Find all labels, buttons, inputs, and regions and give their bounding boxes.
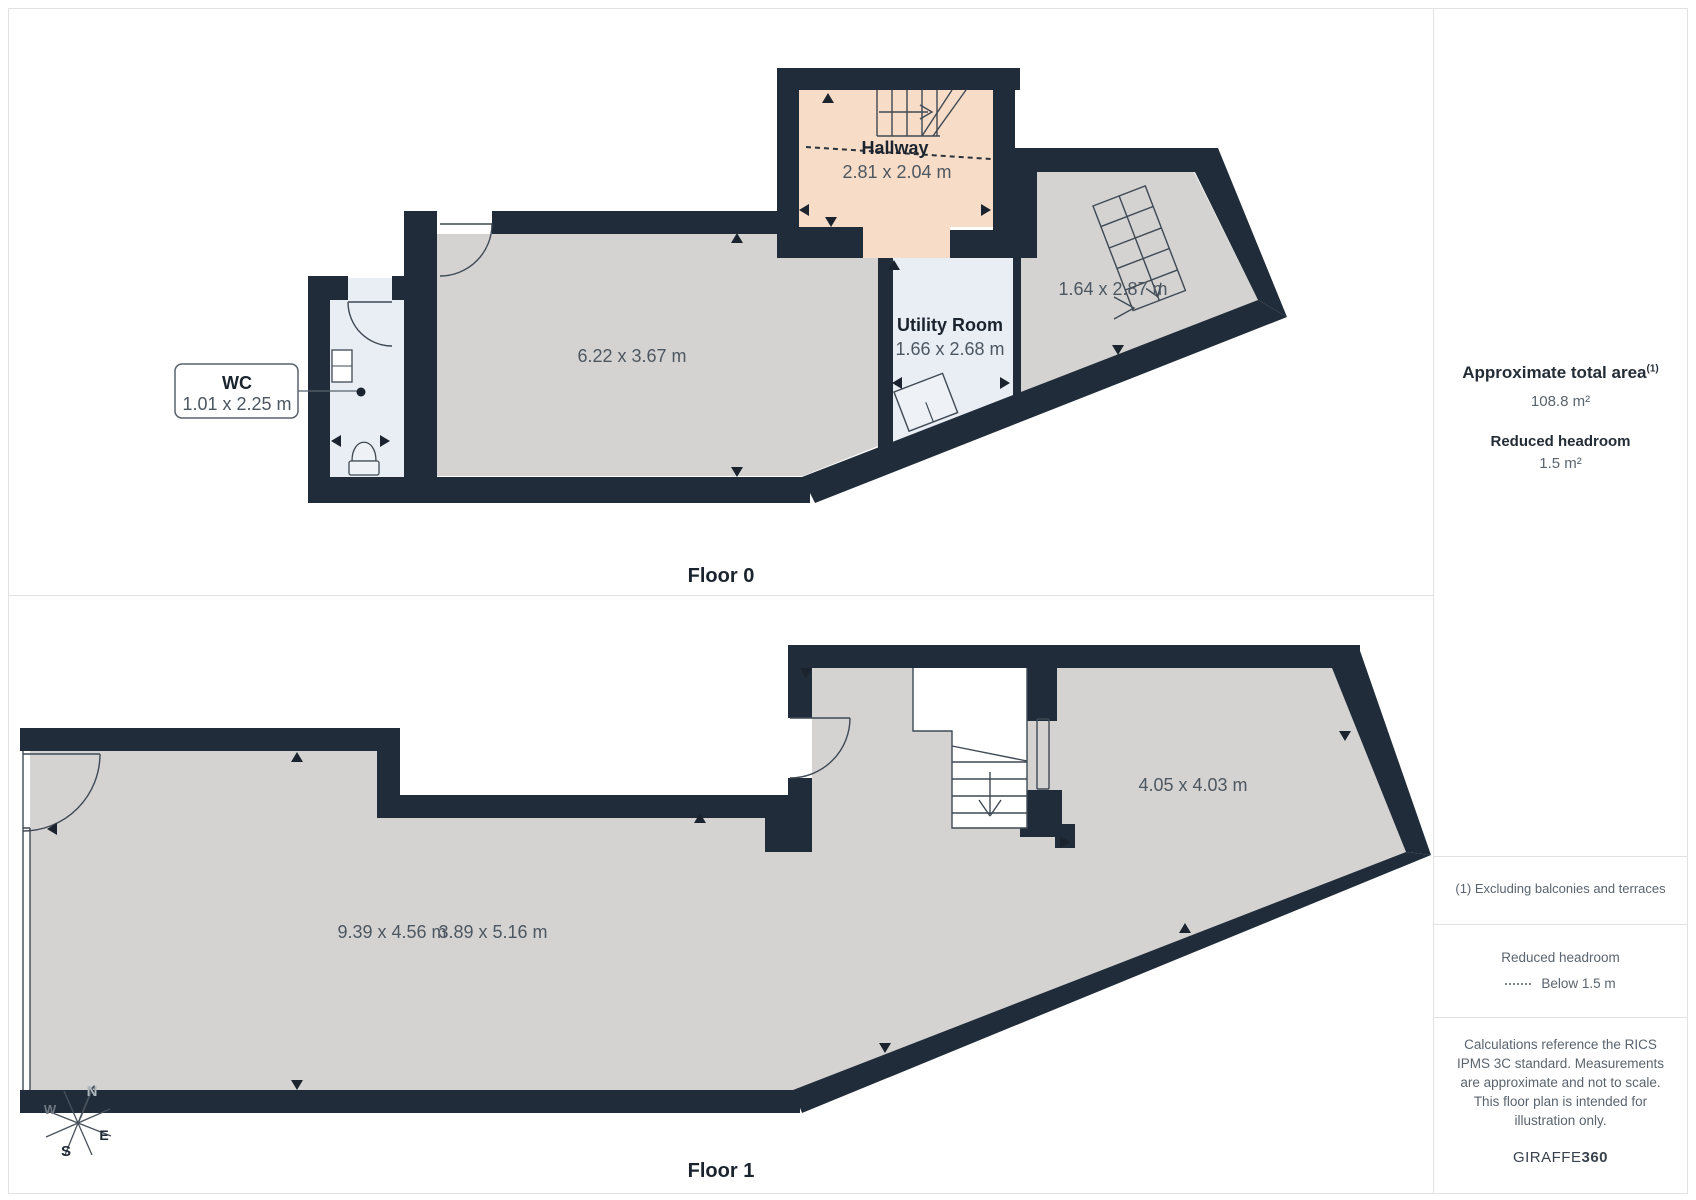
brand-bold: 360 bbox=[1581, 1149, 1608, 1166]
footnote-text: (1) Excluding balconies and terraces bbox=[1434, 881, 1687, 896]
utility-name-label: Utility Room bbox=[897, 315, 1003, 335]
floor1-plan: 9.39 x 4.56 m 3.89 x 5.16 m 4.05 x 4.03 … bbox=[9, 595, 1433, 1192]
compass-south-label: S bbox=[61, 1143, 71, 1160]
sidebar-divider-3 bbox=[1434, 1017, 1687, 1018]
dashed-line-swatch bbox=[1505, 983, 1531, 985]
total-area-footnote-marker: (1) bbox=[1647, 363, 1659, 374]
compass-north-label: N bbox=[87, 1083, 98, 1100]
sidebar-divider-1 bbox=[1434, 856, 1687, 857]
compass-west-label: W bbox=[44, 1102, 57, 1117]
main-room-dims-label: 6.22 x 3.67 m bbox=[577, 346, 686, 366]
total-area-value: 108.8 m² bbox=[1434, 393, 1687, 410]
brand-regular: GIRAFFE bbox=[1513, 1149, 1582, 1166]
brand-logo: GIRAFFE360 bbox=[1434, 1149, 1687, 1166]
hallway-dims-label: 2.81 x 2.04 m bbox=[842, 162, 951, 182]
disclaimer-text: Calculations reference the RICS IPMS 3C … bbox=[1434, 1035, 1687, 1130]
info-sidebar: Approximate total area(1) 108.8 m² Reduc… bbox=[1433, 8, 1688, 1194]
window-wall-lines bbox=[23, 751, 30, 1090]
floor0-title: Floor 0 bbox=[9, 565, 1433, 588]
legend-item-label: Below 1.5 m bbox=[1541, 976, 1615, 991]
wc-dims-label: 1.01 x 2.25 m bbox=[182, 394, 291, 414]
floor-divider bbox=[9, 595, 1433, 596]
total-area-label: Approximate total area bbox=[1462, 363, 1646, 382]
legend-title: Reduced headroom bbox=[1434, 950, 1687, 965]
utility-dims-label: 1.66 x 2.68 m bbox=[895, 339, 1004, 359]
floorplan-page: WC 1.01 x 2.25 m Hallway 2.81 x 2.04 m 6… bbox=[0, 0, 1696, 1200]
floor1-title: Floor 1 bbox=[9, 1160, 1433, 1183]
hallway-name-label: Hallway bbox=[861, 138, 928, 158]
total-area-heading: Approximate total area(1) bbox=[1434, 363, 1687, 383]
wc-name-label: WC bbox=[222, 373, 252, 393]
sidebar-divider-2 bbox=[1434, 924, 1687, 925]
stair-area-dims-label: 1.64 x 2.87 m bbox=[1058, 279, 1167, 299]
room-c-dims-label: 4.05 x 4.03 m bbox=[1138, 775, 1247, 795]
compass-east-label: E bbox=[99, 1127, 108, 1143]
floor0-plan: WC 1.01 x 2.25 m Hallway 2.81 x 2.04 m 6… bbox=[9, 9, 1433, 594]
legend-row: Below 1.5 m bbox=[1434, 976, 1687, 991]
room-b-dims-label: 3.89 x 5.16 m bbox=[438, 922, 547, 942]
reduced-headroom-value: 1.5 m² bbox=[1434, 455, 1687, 472]
reduced-headroom-label: Reduced headroom bbox=[1434, 433, 1687, 450]
room-a-dims-label: 9.39 x 4.56 m bbox=[337, 922, 446, 942]
